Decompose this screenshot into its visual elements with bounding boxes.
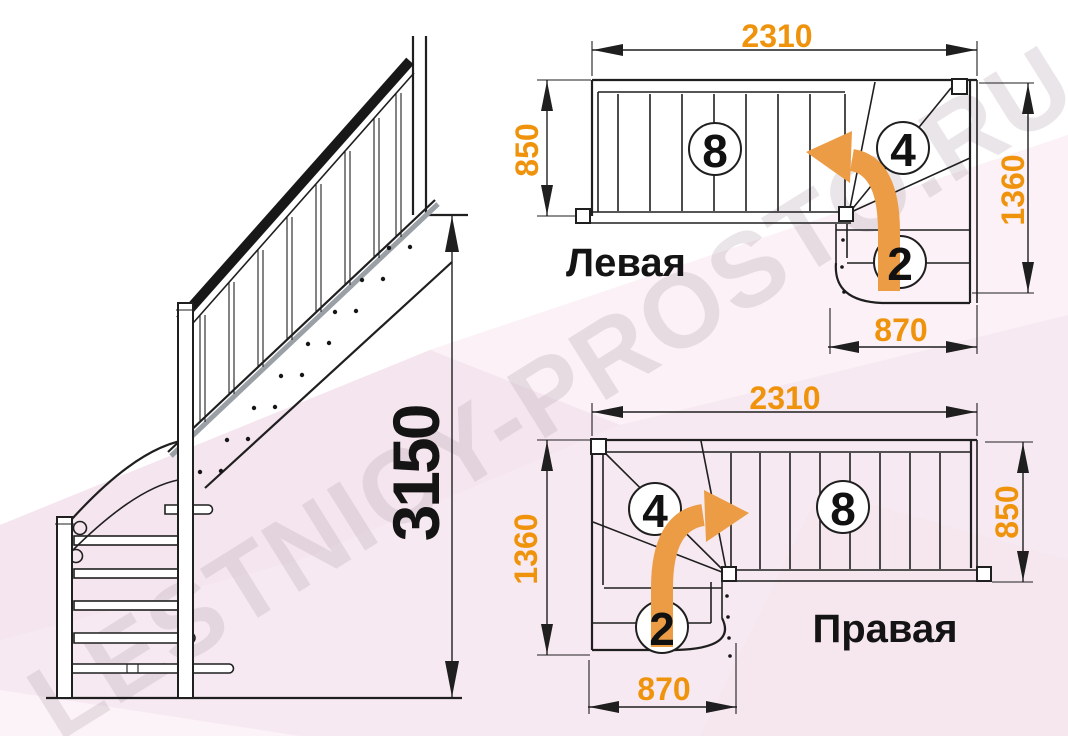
plan-left-dim-top: 2310 <box>592 18 977 76</box>
plan-left-label: Левая <box>566 241 686 285</box>
plan-right-winder-steps: 4 <box>642 485 668 537</box>
svg-text:2310: 2310 <box>741 18 812 54</box>
svg-text:850: 850 <box>509 123 545 176</box>
svg-text:1360: 1360 <box>995 154 1031 225</box>
svg-text:850: 850 <box>989 485 1025 538</box>
plan-left-winder-steps: 4 <box>890 124 916 176</box>
svg-text:870: 870 <box>874 312 927 348</box>
svg-text:870: 870 <box>637 671 690 707</box>
plan-left-straight-steps: 8 <box>702 125 728 177</box>
plan-left-dim-left: 850 <box>509 80 591 216</box>
height-dimension-label: 3150 <box>379 406 453 541</box>
stair-drawing-sheet: LESTNICY-PROSTO.RU <box>0 0 1068 736</box>
plan-left-lower-steps: 2 <box>887 238 913 290</box>
plan-right-straight-steps: 8 <box>830 483 856 535</box>
plan-right-label: Правая <box>812 607 957 651</box>
svg-text:2310: 2310 <box>749 380 820 416</box>
svg-text:1360: 1360 <box>508 513 544 584</box>
plan-right-lower-steps: 2 <box>649 603 675 655</box>
